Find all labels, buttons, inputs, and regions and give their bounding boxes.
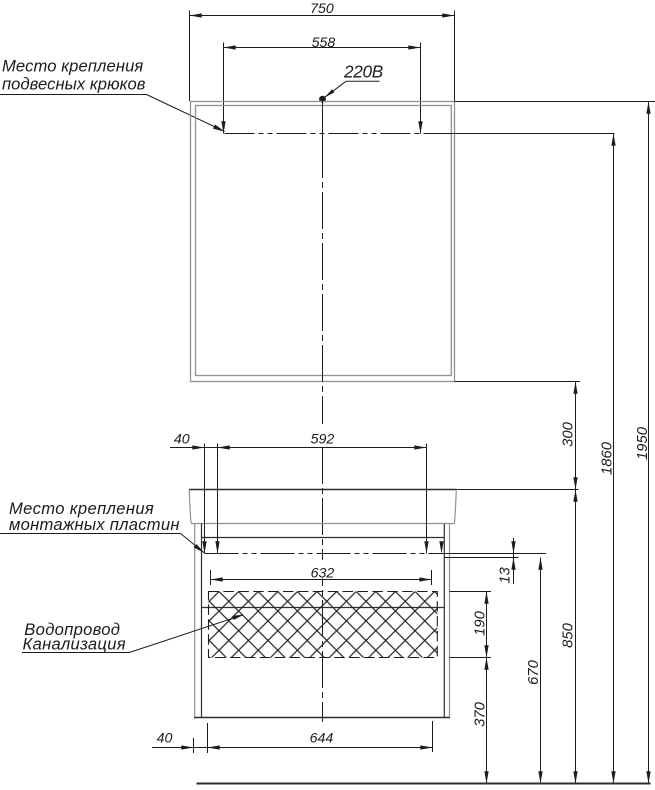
- svg-text:Место крепления: Место крепления: [2, 56, 143, 75]
- svg-text:1950: 1950: [635, 426, 651, 460]
- svg-text:850: 850: [561, 622, 577, 647]
- svg-text:632: 632: [311, 565, 335, 581]
- svg-text:558: 558: [312, 35, 336, 51]
- svg-text:670: 670: [526, 659, 542, 684]
- svg-text:644: 644: [310, 731, 334, 747]
- svg-text:40: 40: [157, 731, 173, 747]
- svg-text:220В: 220В: [343, 62, 383, 82]
- svg-text:монтажных пластин: монтажных пластин: [9, 515, 180, 534]
- svg-text:13: 13: [498, 567, 514, 584]
- svg-text:1860: 1860: [599, 441, 615, 475]
- svg-text:300: 300: [561, 421, 577, 446]
- svg-text:750: 750: [310, 1, 334, 17]
- svg-text:40: 40: [174, 431, 190, 447]
- svg-text:592: 592: [311, 431, 335, 447]
- svg-text:190: 190: [472, 610, 488, 635]
- svg-text:370: 370: [472, 701, 488, 726]
- svg-text:подвесных крюков: подвесных крюков: [2, 75, 146, 94]
- svg-text:Канализация: Канализация: [23, 635, 126, 654]
